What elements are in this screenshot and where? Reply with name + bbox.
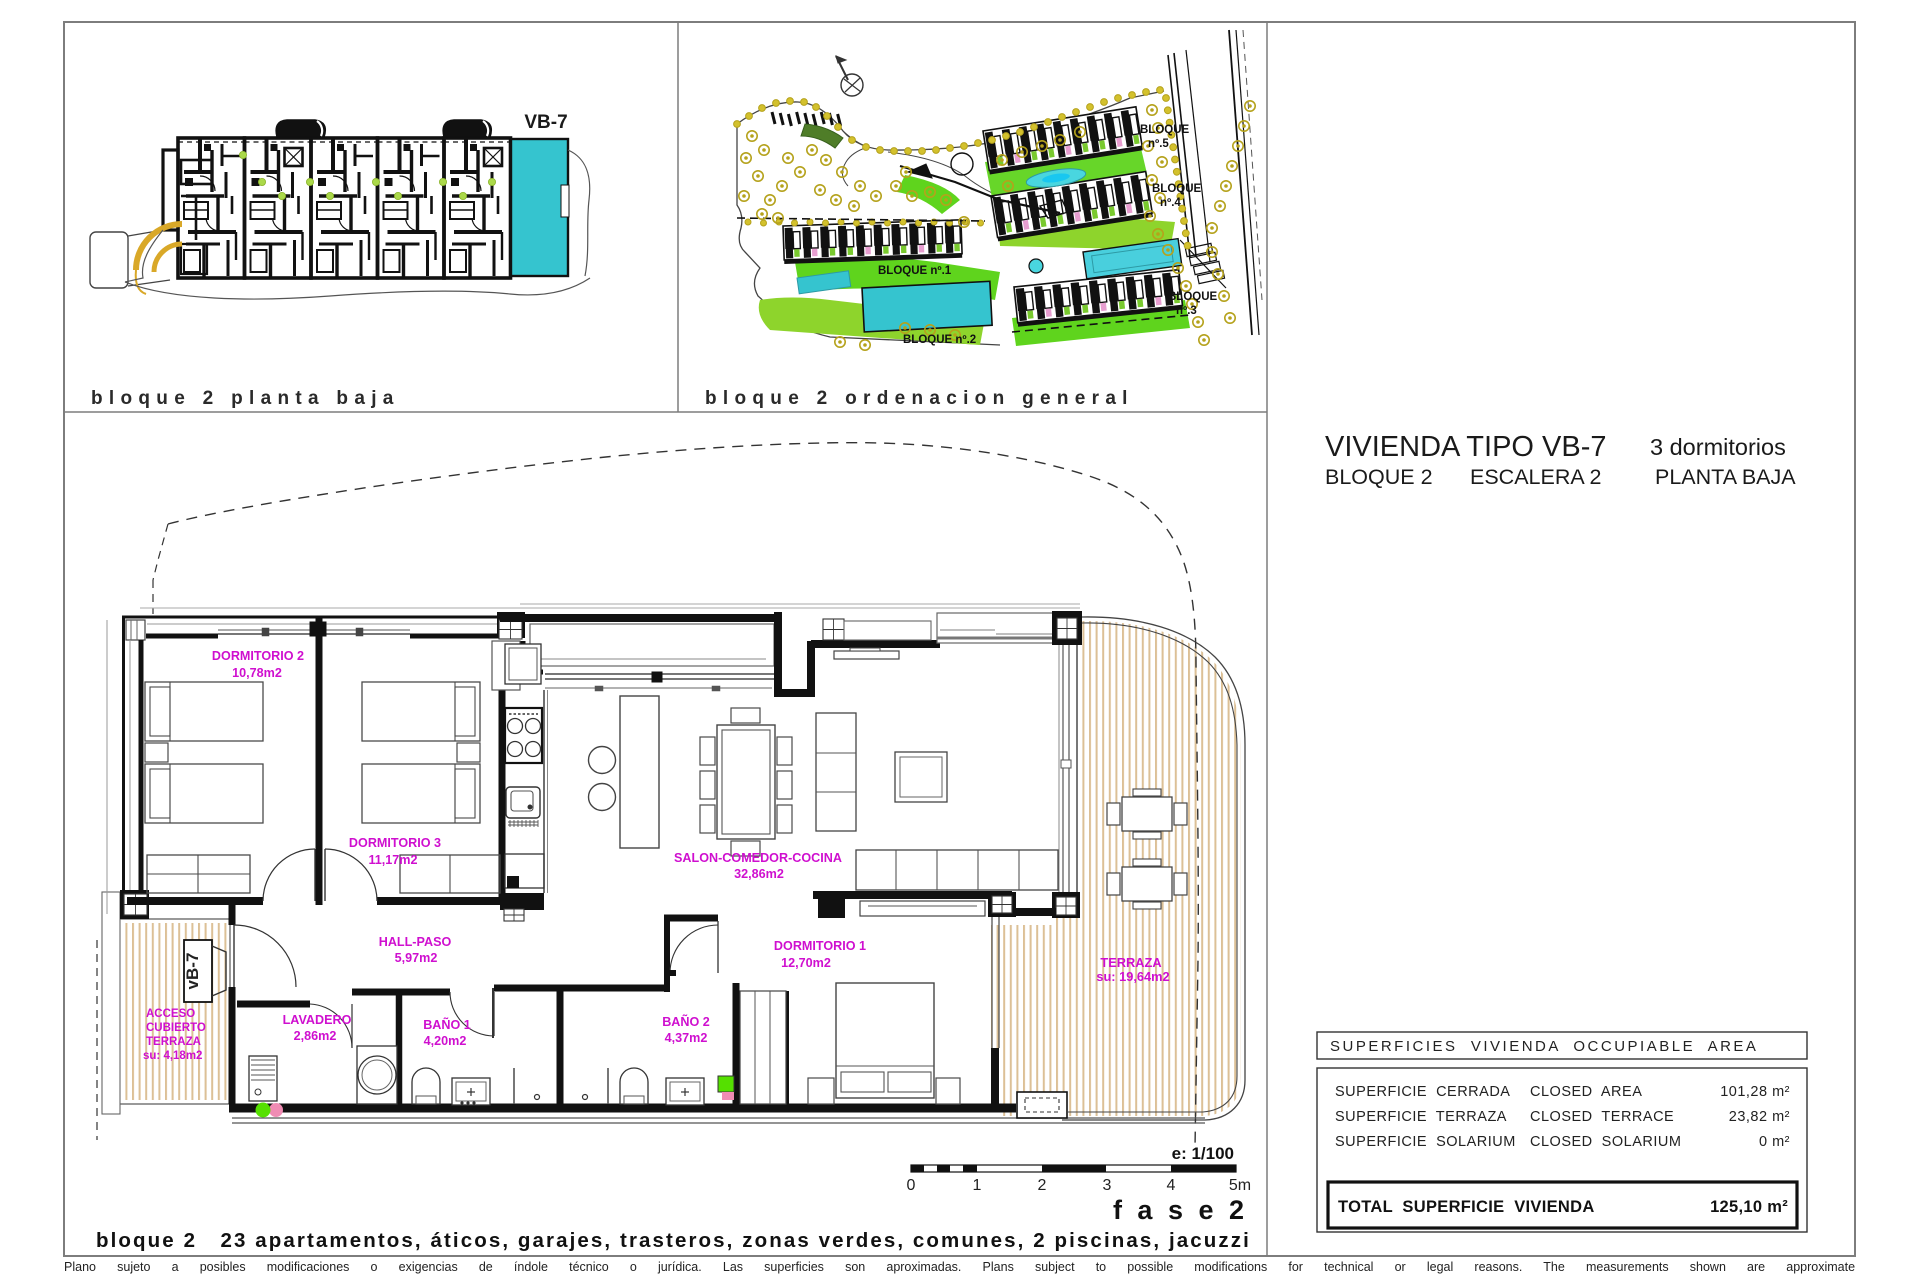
- svg-text:23,82 m²: 23,82 m²: [1729, 1109, 1790, 1125]
- svg-text:BLOQUE 2: BLOQUE 2: [1325, 465, 1433, 489]
- svg-text:ESCALERA 2: ESCALERA 2: [1470, 465, 1601, 489]
- svg-text:BAÑO 2: BAÑO 2: [662, 1014, 710, 1029]
- svg-text:5m: 5m: [1229, 1177, 1251, 1194]
- svg-text:12,70m2: 12,70m2: [781, 956, 831, 970]
- svg-text:5,97m2: 5,97m2: [395, 951, 438, 965]
- svg-text:0: 0: [907, 1177, 916, 1194]
- svg-text:bloque 2 planta baja: bloque 2 planta baja: [91, 388, 400, 409]
- svg-text:nº.4: nº.4: [1160, 197, 1181, 209]
- svg-text:bloque 2 ordenacion general: bloque 2 ordenacion general: [705, 388, 1134, 409]
- svg-text:CLOSED SOLARIUM: CLOSED SOLARIUM: [1530, 1134, 1681, 1150]
- svg-text:DORMITORIO 3: DORMITORIO 3: [349, 836, 441, 850]
- svg-text:0 m²: 0 m²: [1759, 1134, 1790, 1150]
- svg-text:4: 4: [1167, 1177, 1176, 1194]
- svg-text:101,28 m²: 101,28 m²: [1720, 1084, 1790, 1100]
- svg-text:3 dormitorios: 3 dormitorios: [1650, 434, 1786, 460]
- svg-text:BLOQUE: BLOQUE: [1140, 124, 1190, 136]
- svg-text:f a s e 2: f a s e 2: [1113, 1195, 1248, 1225]
- svg-text:BLOQUE: BLOQUE: [1152, 183, 1202, 195]
- svg-text:PLANTA BAJA: PLANTA BAJA: [1655, 465, 1796, 489]
- svg-text:2: 2: [1038, 1177, 1047, 1194]
- svg-text:BLOQUE nº.1: BLOQUE nº.1: [878, 265, 952, 277]
- svg-text:SUPERFICIE CERRADA: SUPERFICIE CERRADA: [1335, 1084, 1510, 1100]
- svg-text:Plano sujeto a posibles mo: Plano sujeto a posibles modificaciones o…: [64, 1260, 1855, 1274]
- svg-text:4,37m2: 4,37m2: [665, 1031, 708, 1045]
- svg-text:su: 19,64m2: su: 19,64m2: [1096, 969, 1169, 984]
- svg-text:TOTAL SUPERFICIE VIVIENDA: TOTAL SUPERFICIE VIVIENDA: [1338, 1198, 1595, 1216]
- svg-text:SUPERFICIE SOLARIUM: SUPERFICIE SOLARIUM: [1335, 1134, 1516, 1150]
- svg-text:32,86m2: 32,86m2: [734, 867, 784, 881]
- svg-text:1: 1: [973, 1177, 982, 1194]
- svg-text:HALL-PASO: HALL-PASO: [379, 935, 452, 949]
- svg-text:nº.3: nº.3: [1176, 305, 1197, 317]
- svg-text:nº.5: nº.5: [1148, 138, 1169, 150]
- svg-text:2,86m2: 2,86m2: [294, 1029, 337, 1043]
- svg-text:SUPERFICIES VIVIENDA OCCUPIA: SUPERFICIES VIVIENDA OCCUPIABLE AREA: [1330, 1038, 1758, 1055]
- svg-text:4,20m2: 4,20m2: [424, 1034, 467, 1048]
- svg-text:10,78m2: 10,78m2: [232, 666, 282, 680]
- svg-text:SALON-COMEDOR-COCINA: SALON-COMEDOR-COCINA: [674, 851, 842, 865]
- svg-text:TERRAZA: TERRAZA: [146, 1036, 201, 1048]
- svg-text:CLOSED TERRACE: CLOSED TERRACE: [1530, 1109, 1674, 1125]
- svg-text:TERRAZA: TERRAZA: [1100, 955, 1161, 970]
- svg-text:bloque 2 23 apartamentos, át: bloque 2 23 apartamentos, áticos, garaje…: [96, 1229, 1251, 1252]
- svg-text:DORMITORIO 2: DORMITORIO 2: [212, 649, 304, 663]
- svg-text:125,10 m²: 125,10 m²: [1710, 1198, 1788, 1216]
- svg-text:11,17m2: 11,17m2: [368, 853, 417, 867]
- svg-text:SUPERFICIE TERRAZA: SUPERFICIE TERRAZA: [1335, 1109, 1507, 1125]
- svg-text:BLOQUE: BLOQUE: [1168, 291, 1218, 303]
- svg-text:DORMITORIO 1: DORMITORIO 1: [774, 939, 866, 953]
- svg-text:LAVADERO: LAVADERO: [283, 1013, 352, 1027]
- svg-text:su: 4,18m2: su: 4,18m2: [143, 1050, 202, 1062]
- svg-text:CUBIERTO: CUBIERTO: [146, 1022, 206, 1034]
- svg-text:BLOQUE nº.2: BLOQUE nº.2: [903, 334, 976, 346]
- svg-text:BAÑO 1: BAÑO 1: [423, 1017, 471, 1032]
- svg-text:CLOSED AREA: CLOSED AREA: [1530, 1084, 1642, 1100]
- svg-text:e: 1/100: e: 1/100: [1172, 1144, 1234, 1163]
- svg-text:3: 3: [1103, 1177, 1112, 1194]
- svg-text:VB-7: VB-7: [524, 112, 567, 133]
- svg-text:vB-7: vB-7: [183, 953, 202, 990]
- svg-text:ACCESO: ACCESO: [146, 1008, 195, 1020]
- svg-text:VIVIENDA TIPO VB-7: VIVIENDA TIPO VB-7: [1325, 431, 1607, 463]
